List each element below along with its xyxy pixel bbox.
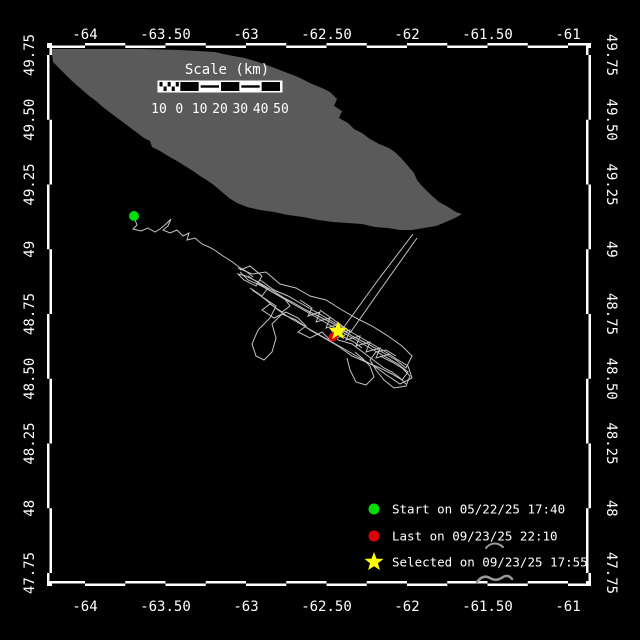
scale-bar-label: 30 xyxy=(232,102,248,117)
frame-tick-segment xyxy=(206,584,246,587)
lat-tick-label-left: 49.25 xyxy=(22,163,38,205)
frame-tick-segment xyxy=(488,581,528,584)
frame-tick-segment xyxy=(52,584,85,587)
lat-tick-label-right: 48 xyxy=(603,500,619,517)
lat-tick-label-right: 49.50 xyxy=(603,99,619,141)
frame-tick-segment xyxy=(47,120,50,185)
frame-tick-segment xyxy=(528,43,568,46)
lon-tick-label-top: -63 xyxy=(233,27,258,43)
frame-tick-segment xyxy=(246,581,286,584)
frame-tick-segment xyxy=(125,584,165,587)
frame-tick-segment xyxy=(85,46,125,49)
frame-tick-segment xyxy=(488,46,528,49)
frame-tick-segment xyxy=(50,444,53,509)
scale-bar-segment xyxy=(180,82,198,91)
legend-last-label: Last on 09/23/25 22:10 xyxy=(392,529,558,544)
lat-tick-label-left: 47.75 xyxy=(22,552,38,594)
frame-tick-segment xyxy=(568,46,586,49)
frame-tick-segment xyxy=(50,185,53,250)
frame-tick-segment xyxy=(327,46,367,49)
lat-tick-label-right: 47.75 xyxy=(603,552,619,594)
start-position-marker[interactable] xyxy=(129,211,139,221)
legend: Start on 05/22/25 17:40 Last on 09/23/25… xyxy=(365,502,588,571)
lon-tick-label-top: -63.50 xyxy=(140,27,191,43)
lat-tick-label-right: 48.75 xyxy=(603,293,619,335)
lat-tick-label-right: 48.25 xyxy=(603,422,619,464)
frame-tick-segment xyxy=(286,43,326,46)
lon-tick-label-bottom: -63.50 xyxy=(140,599,191,615)
lat-tick-label-right: 49.75 xyxy=(603,34,619,76)
frame-tick-segment xyxy=(166,581,206,584)
scale-bar-label: 50 xyxy=(273,102,289,117)
frame-tick-segment xyxy=(47,249,50,314)
frame-tick-segment xyxy=(568,581,586,584)
frame-tick-segment xyxy=(589,48,592,55)
lon-tick-label-top: -61 xyxy=(555,27,580,43)
lat-tick-label-left: 48.50 xyxy=(22,358,38,400)
frame-tick-segment xyxy=(586,444,589,509)
lon-tick-label-bottom: -62 xyxy=(394,599,419,615)
frame-tick-segment xyxy=(528,584,568,587)
frame-tick-segment xyxy=(47,48,50,55)
lon-tick-label-bottom: -63 xyxy=(233,599,258,615)
frame-tick-segment xyxy=(589,249,592,314)
start-marker-icon xyxy=(369,504,380,515)
frame-tick-segment xyxy=(589,508,592,573)
legend-start-label: Start on 05/22/25 17:40 xyxy=(392,502,565,517)
frame-tick-segment xyxy=(367,584,407,587)
frame-tick-segment xyxy=(586,573,589,581)
lat-tick-label-left: 49.50 xyxy=(22,99,38,141)
lat-tick-label-right: 49.25 xyxy=(603,163,619,205)
lon-tick-label-top: -64 xyxy=(72,27,97,43)
scale-bar-label: 10 xyxy=(151,102,167,117)
frame-tick-segment xyxy=(367,43,407,46)
frame-tick-segment xyxy=(50,55,53,120)
lat-tick-label-right: 48.50 xyxy=(603,358,619,400)
frame-tick-segment xyxy=(52,43,85,46)
lat-tick-label-left: 48.75 xyxy=(22,293,38,335)
frame-tick-segment xyxy=(85,581,125,584)
scale-bar-label: 40 xyxy=(253,102,269,117)
frame-tick-segment xyxy=(206,43,246,46)
scale-bar-checker-cell xyxy=(176,82,179,87)
frame-tick-segment xyxy=(407,581,447,584)
scale-bar-segment xyxy=(221,82,239,91)
tracking-map[interactable]: -64-64-63.50-63.50-63-63-62.50-62.50-62-… xyxy=(0,0,640,640)
lon-tick-label-bottom: -61.50 xyxy=(462,599,513,615)
scale-bar-segment xyxy=(262,82,280,91)
scale-bar-checker-cell xyxy=(164,87,167,92)
frame-tick-segment xyxy=(327,581,367,584)
lon-tick-label-top: -61.50 xyxy=(462,27,513,43)
lat-tick-label-left: 49 xyxy=(22,241,38,258)
last-marker-icon xyxy=(369,531,380,542)
frame-tick-segment xyxy=(286,584,326,587)
scale-bar-segment xyxy=(201,85,219,87)
frame-tick-segment xyxy=(246,46,286,49)
frame-tick-segment xyxy=(589,120,592,185)
scale-bar-label: 10 xyxy=(192,102,208,117)
frame-tick-segment xyxy=(586,55,589,120)
frame-tick-segment xyxy=(50,314,53,379)
legend-selected-label: Selected on 09/23/25 17:55 xyxy=(392,555,588,570)
frame-tick-segment xyxy=(47,508,50,573)
frame-tick-segment xyxy=(586,185,589,250)
scale-bar-label: 0 xyxy=(175,102,183,117)
lat-tick-label-right: 49 xyxy=(603,241,619,258)
scale-bar-title: Scale (km) xyxy=(185,62,269,78)
lat-tick-label-left: 48 xyxy=(22,500,38,517)
lon-tick-label-top: -62 xyxy=(394,27,419,43)
lat-tick-label-left: 49.75 xyxy=(22,34,38,76)
frame-tick-segment xyxy=(586,314,589,379)
scale-bar-label: 20 xyxy=(212,102,228,117)
frame-tick-segment xyxy=(589,379,592,444)
scale-bar-checker-cell xyxy=(160,82,163,87)
lon-tick-label-bottom: -62.50 xyxy=(301,599,352,615)
lon-tick-label-bottom: -61 xyxy=(555,599,580,615)
lon-tick-label-bottom: -64 xyxy=(72,599,97,615)
frame-tick-segment xyxy=(125,43,165,46)
frame-tick-segment xyxy=(50,573,53,581)
frame-tick-segment xyxy=(447,584,487,587)
frame-tick-segment xyxy=(166,46,206,49)
frame-tick-segment xyxy=(447,43,487,46)
scale-bar-segment xyxy=(241,85,259,87)
frame-tick-segment xyxy=(407,46,447,49)
scale-bar-checker-cell xyxy=(172,87,175,92)
frame-tick-segment xyxy=(47,379,50,444)
lon-tick-label-top: -62.50 xyxy=(301,27,352,43)
lat-tick-label-left: 48.25 xyxy=(22,422,38,464)
scale-bar-checker-cell xyxy=(168,82,171,87)
